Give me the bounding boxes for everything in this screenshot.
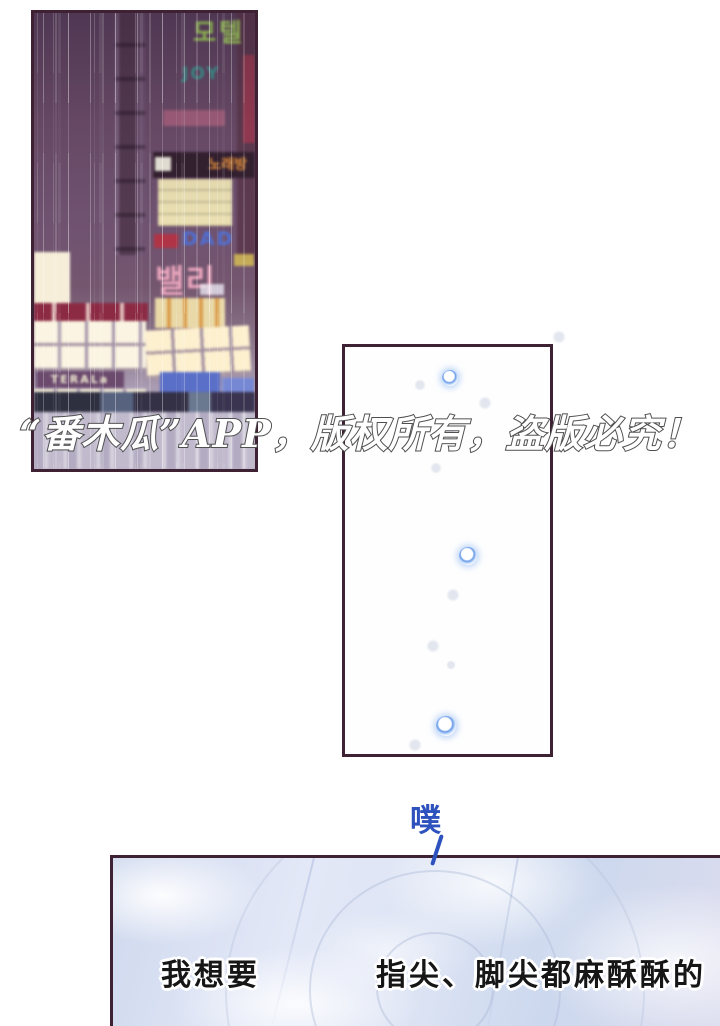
water-droplet [459,547,477,565]
sfx-group: 噗 [404,795,468,879]
speech-text-right: 指尖、脚尖都麻酥酥的 [376,950,706,994]
panel-rainy-city: 모텔 JOY 노래방 DAD 밸리 TERALa [31,10,258,472]
water-droplet [446,660,456,670]
comic-page: 모텔 JOY 노래방 DAD 밸리 TERALa [0,0,720,1026]
speech-text-left: 我想要 [161,950,260,994]
panel-feeling: 我想要 指尖、脚尖都麻酥酥的 [110,855,720,1026]
water-droplet [436,716,456,736]
water-droplet [552,330,566,344]
water-droplet [446,588,460,602]
rain-streaks-layer2 [34,13,255,469]
water-droplet [414,379,426,391]
sfx-text: 噗 [410,795,441,840]
water-droplet [426,639,440,653]
water-droplet [442,370,458,386]
copyright-watermark: “番木瓜”APP，版权所有，盗版必究！ [0,404,720,464]
water-droplet [408,738,422,752]
